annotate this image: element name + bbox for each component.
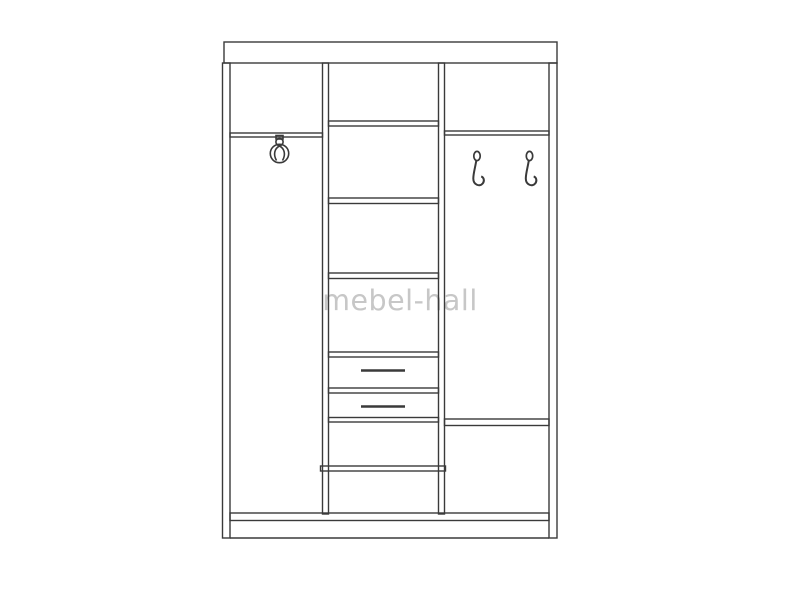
drawer-block-bottom [329,418,439,423]
top-board [224,42,557,63]
middle-shelf-2 [329,198,439,204]
middle-shelf-3 [329,273,439,279]
swivel-hook-ball [270,144,288,162]
coat-hook-1-body [473,161,484,186]
right-section-lower-shelf [445,419,550,426]
middle-shelf-1 [329,121,439,126]
furniture-diagram-page: mebel-hall [0,0,800,600]
wardrobe-schematic: mebel-hall [0,0,800,600]
swivel-hook-prong-right [280,146,285,161]
coat-hook-icon-1 [473,151,484,185]
bottom-board [230,513,549,521]
drawer-block-top [329,352,439,357]
coat-hook-icon-2 [526,151,537,185]
coat-hook-2-loop [526,151,532,160]
coat-hook-2-body [526,161,537,186]
coat-hook-1-loop [474,151,480,160]
watermark-text: mebel-hall [322,284,478,317]
right-section-top-shelf [445,131,550,135]
middle-shelf-4 [321,466,446,471]
swivel-hook-icon [270,136,288,163]
right-side-panel [549,63,557,538]
swivel-hook-prong-left [275,146,280,161]
left-side-panel [223,63,231,538]
drawer-divider [329,388,439,393]
